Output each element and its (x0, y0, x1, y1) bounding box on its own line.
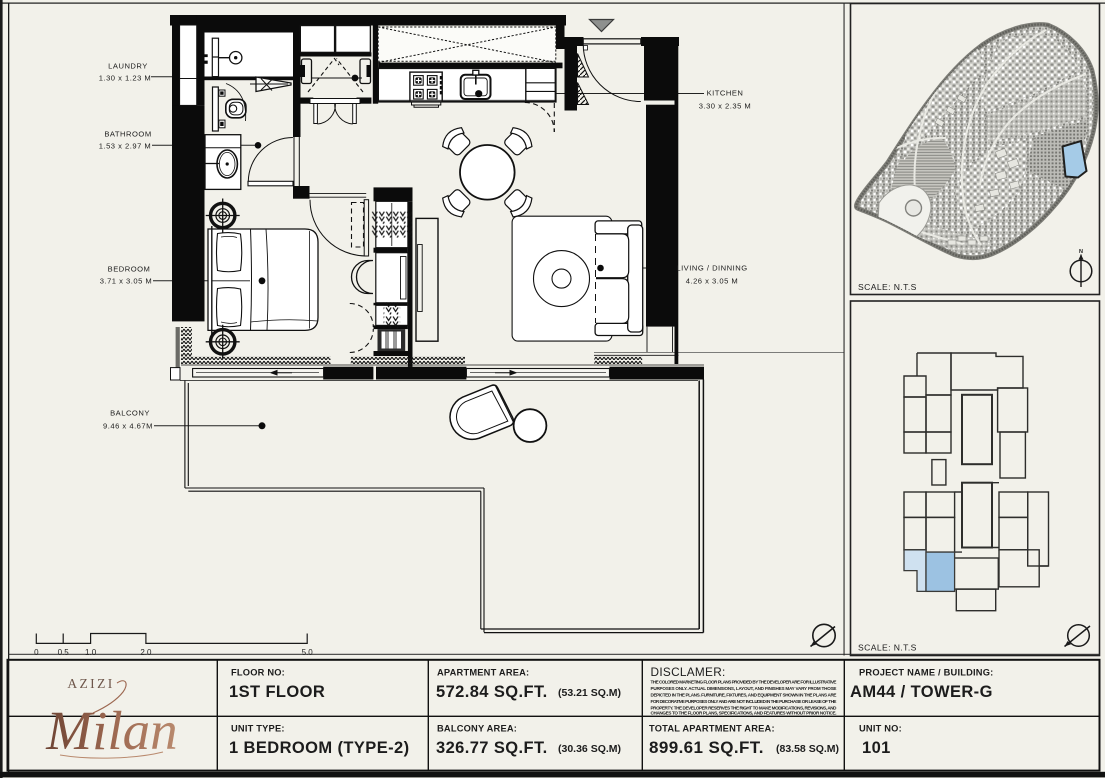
svg-text:1.0: 1.0 (85, 648, 97, 657)
svg-text:572.84 SQ.FT.: 572.84 SQ.FT. (436, 683, 548, 701)
svg-text:9.46 x 4.67M: 9.46 x 4.67M (103, 422, 153, 431)
svg-text:DEPICTED IN THE PLANS. FURNITU: DEPICTED IN THE PLANS. FURNITURE, FIXTUR… (651, 693, 837, 698)
svg-text:SCALE: N.T.S: SCALE: N.T.S (858, 643, 917, 653)
svg-text:PROJECT NAME / BUILDING:: PROJECT NAME / BUILDING: (859, 668, 993, 678)
svg-text:CHANGES TO THE FLOOR PLANS, SP: CHANGES TO THE FLOOR PLANS, SPECIFICATIO… (651, 711, 837, 716)
svg-text:APARTMENT AREA:: APARTMENT AREA: (437, 668, 529, 678)
svg-text:0: 0 (34, 648, 39, 657)
svg-text:BALCONY AREA:: BALCONY AREA: (437, 724, 517, 734)
svg-text:FLOOR NO:: FLOOR NO: (231, 668, 285, 678)
svg-text:(53.21 SQ.M): (53.21 SQ.M) (558, 687, 621, 699)
svg-text:LIVING / DINNING: LIVING / DINNING (676, 264, 747, 273)
svg-text:DISCLAMER:: DISCLAMER: (651, 665, 726, 679)
svg-text:3.71 x 3.05 M: 3.71 x 3.05 M (100, 277, 153, 286)
svg-text:AM44 / TOWER-G: AM44 / TOWER-G (850, 683, 993, 701)
svg-text:(83.58 SQ.M): (83.58 SQ.M) (776, 743, 839, 755)
svg-text:LAUNDRY: LAUNDRY (108, 62, 148, 71)
svg-text:1.30 x 1.23 M: 1.30 x 1.23 M (99, 74, 152, 83)
svg-text:0.5: 0.5 (58, 648, 70, 657)
svg-text:THE COLORED MARKETING FLOOR PL: THE COLORED MARKETING FLOOR PLANS PROVID… (651, 680, 837, 685)
svg-text:1.53 x 2.97 M: 1.53 x 2.97 M (99, 142, 152, 151)
svg-text:N: N (1079, 249, 1083, 255)
svg-text:UNIT TYPE:: UNIT TYPE: (231, 724, 285, 734)
svg-text:UNIT NO:: UNIT NO: (859, 724, 902, 734)
svg-text:326.77 SQ.FT.: 326.77 SQ.FT. (436, 739, 548, 757)
svg-text:BATHROOM: BATHROOM (104, 130, 151, 139)
svg-text:PURPOSES ONLY. ACTUAL DIMENSIO: PURPOSES ONLY. ACTUAL DIMENSIONS, LAYOUT… (651, 686, 837, 691)
svg-text:Milan: Milan (45, 700, 177, 761)
svg-text:AZIZI: AZIZI (67, 676, 114, 691)
svg-text:KITCHEN: KITCHEN (707, 89, 744, 98)
svg-text:4.26 x 3.05 M: 4.26 x 3.05 M (686, 277, 739, 286)
svg-text:SCALE: N.T.S: SCALE: N.T.S (858, 282, 917, 292)
svg-text:899.61 SQ.FT.: 899.61 SQ.FT. (649, 738, 764, 757)
svg-text:2.0: 2.0 (140, 648, 152, 657)
svg-text:101: 101 (862, 739, 891, 757)
svg-text:1 BEDROOM (TYPE-2): 1 BEDROOM (TYPE-2) (229, 739, 409, 757)
svg-text:5.0: 5.0 (302, 648, 314, 657)
svg-text:(30.36 SQ.M): (30.36 SQ.M) (558, 743, 621, 755)
svg-text:1ST FLOOR: 1ST FLOOR (229, 683, 325, 701)
svg-text:BALCONY: BALCONY (110, 409, 150, 418)
svg-text:FOR DECORATIVE PURPOSES ONLY A: FOR DECORATIVE PURPOSES ONLY AND ARE NOT… (651, 699, 837, 704)
svg-text:3.30 x 2.35 M: 3.30 x 2.35 M (699, 102, 752, 111)
svg-text:TOTAL APARTMENT AREA:: TOTAL APARTMENT AREA: (649, 724, 775, 734)
svg-text:BEDROOM: BEDROOM (108, 265, 151, 274)
